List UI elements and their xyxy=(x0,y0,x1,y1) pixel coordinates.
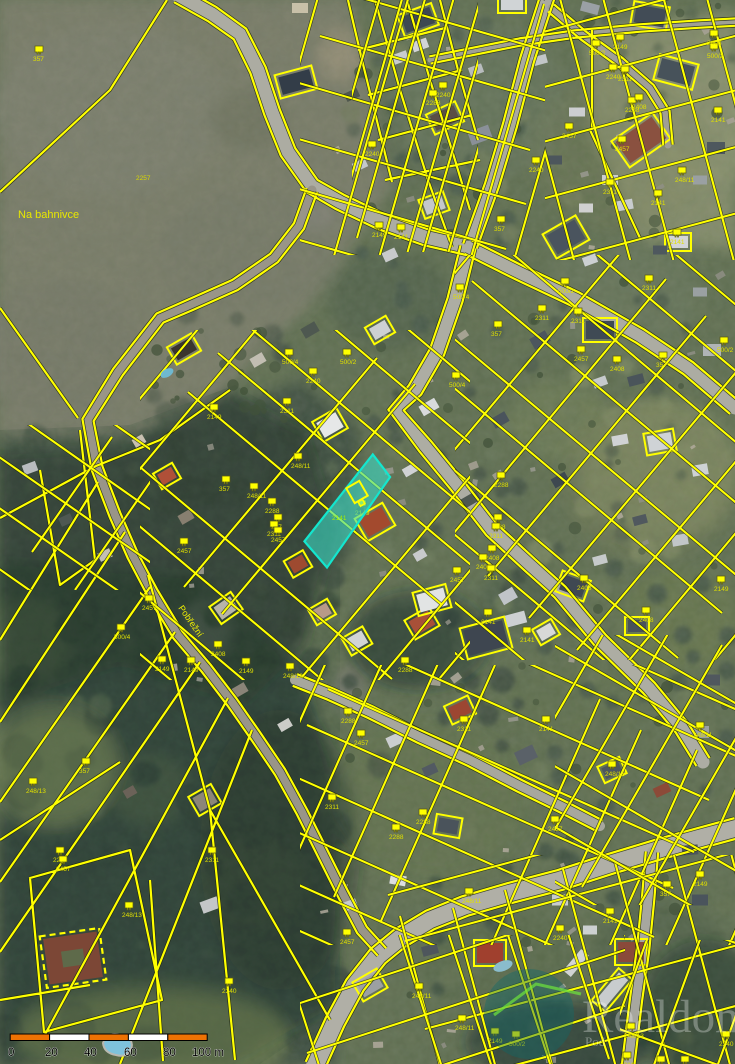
svg-text:2149: 2149 xyxy=(372,232,387,239)
svg-text:2149: 2149 xyxy=(184,667,199,674)
svg-text:2408: 2408 xyxy=(632,104,647,111)
svg-text:357: 357 xyxy=(494,226,505,233)
svg-text:2240: 2240 xyxy=(306,378,321,385)
svg-text:357: 357 xyxy=(79,768,90,775)
svg-text:2149: 2149 xyxy=(155,666,170,673)
svg-text:500/2: 500/2 xyxy=(558,288,575,295)
svg-text:2141: 2141 xyxy=(539,726,554,733)
svg-text:2240: 2240 xyxy=(436,92,451,99)
svg-text:2141: 2141 xyxy=(711,117,726,124)
svg-text:60: 60 xyxy=(124,1047,137,1059)
svg-text:2288: 2288 xyxy=(494,482,509,489)
svg-text:248/11: 248/11 xyxy=(412,993,432,1000)
svg-text:500/2: 500/2 xyxy=(589,50,606,57)
svg-text:Na bahnivce: Na bahnivce xyxy=(18,209,79,221)
svg-text:Pod: Pod xyxy=(585,1034,606,1049)
svg-text:2141: 2141 xyxy=(332,515,347,522)
svg-text:2311: 2311 xyxy=(603,189,617,196)
svg-text:248/11: 248/11 xyxy=(455,1025,475,1032)
svg-text:2457: 2457 xyxy=(340,939,355,946)
svg-text:2240: 2240 xyxy=(606,74,621,81)
svg-text:2311: 2311 xyxy=(325,804,339,811)
svg-text:2457: 2457 xyxy=(562,133,577,140)
svg-text:2311: 2311 xyxy=(642,285,656,292)
svg-text:248/13: 248/13 xyxy=(283,673,303,680)
svg-text:2457: 2457 xyxy=(615,146,630,153)
svg-text:2408: 2408 xyxy=(610,366,625,373)
svg-text:2149: 2149 xyxy=(613,44,628,51)
svg-text:357: 357 xyxy=(219,486,230,493)
svg-text:2457: 2457 xyxy=(450,577,465,584)
svg-text:500/4: 500/4 xyxy=(282,359,299,366)
svg-text:2288: 2288 xyxy=(265,508,280,515)
svg-text:357: 357 xyxy=(33,56,44,63)
svg-text:500/2: 500/2 xyxy=(707,53,724,60)
svg-text:2457: 2457 xyxy=(142,605,157,612)
svg-text:2141: 2141 xyxy=(394,234,409,241)
svg-text:2311: 2311 xyxy=(457,726,471,733)
svg-text:2408: 2408 xyxy=(639,617,654,624)
svg-text:40: 40 xyxy=(84,1047,97,1059)
svg-text:2141: 2141 xyxy=(603,918,618,925)
svg-text:2311: 2311 xyxy=(571,318,585,325)
svg-text:248/13: 248/13 xyxy=(605,771,625,778)
svg-text:2457: 2457 xyxy=(354,740,369,747)
svg-text:2457: 2457 xyxy=(574,356,589,363)
svg-text:2141: 2141 xyxy=(651,200,666,207)
svg-text:500/2: 500/2 xyxy=(340,359,357,366)
svg-text:357: 357 xyxy=(491,331,502,338)
svg-text:20: 20 xyxy=(45,1047,58,1059)
svg-text:2457: 2457 xyxy=(548,826,563,833)
svg-text:2149: 2149 xyxy=(693,881,708,888)
svg-text:2311: 2311 xyxy=(484,575,498,582)
svg-text:2141: 2141 xyxy=(670,239,685,246)
svg-text:2240: 2240 xyxy=(553,935,568,942)
svg-text:2457: 2457 xyxy=(177,548,192,555)
svg-text:357: 357 xyxy=(660,891,671,898)
svg-text:2149: 2149 xyxy=(207,414,222,421)
svg-text:2240: 2240 xyxy=(365,151,380,158)
svg-text:2288: 2288 xyxy=(341,718,356,725)
svg-text:2288: 2288 xyxy=(389,834,404,841)
svg-text:2257: 2257 xyxy=(136,175,151,182)
svg-text:2288: 2288 xyxy=(416,819,431,826)
svg-text:2240: 2240 xyxy=(529,167,544,174)
svg-text:248/13: 248/13 xyxy=(26,788,46,795)
svg-text:248/11: 248/11 xyxy=(675,177,695,184)
svg-text:80: 80 xyxy=(163,1047,176,1059)
svg-text:2311: 2311 xyxy=(535,315,549,322)
svg-text:248/11: 248/11 xyxy=(693,732,713,739)
svg-text:248/11: 248/11 xyxy=(462,898,482,905)
svg-text:357: 357 xyxy=(656,362,667,369)
svg-text:248/11: 248/11 xyxy=(247,493,267,500)
svg-text:2141: 2141 xyxy=(520,637,535,644)
svg-text:2141: 2141 xyxy=(481,619,496,626)
svg-text:2149: 2149 xyxy=(714,586,729,593)
svg-text:248/11: 248/11 xyxy=(291,463,311,470)
svg-text:2408: 2408 xyxy=(577,585,592,592)
svg-text:500/2: 500/2 xyxy=(717,347,734,354)
svg-text:500/4: 500/4 xyxy=(453,294,470,301)
svg-text:248/13: 248/13 xyxy=(122,912,142,919)
svg-text:2457: 2457 xyxy=(271,537,286,544)
svg-text:2408: 2408 xyxy=(707,40,722,47)
svg-text:2408: 2408 xyxy=(211,651,226,658)
svg-text:0: 0 xyxy=(8,1047,14,1059)
svg-text:2311: 2311 xyxy=(280,408,294,415)
svg-text:500/4: 500/4 xyxy=(449,382,466,389)
svg-text:2288: 2288 xyxy=(426,100,441,107)
svg-text:2311: 2311 xyxy=(205,857,219,864)
svg-text:2288: 2288 xyxy=(398,667,413,674)
svg-text:2240: 2240 xyxy=(222,988,237,995)
svg-text:2457: 2457 xyxy=(56,866,71,873)
svg-text:2311: 2311 xyxy=(489,533,503,540)
svg-text:2149: 2149 xyxy=(239,668,254,675)
svg-text:500/4: 500/4 xyxy=(114,634,131,641)
svg-text:100 m: 100 m xyxy=(192,1047,224,1059)
